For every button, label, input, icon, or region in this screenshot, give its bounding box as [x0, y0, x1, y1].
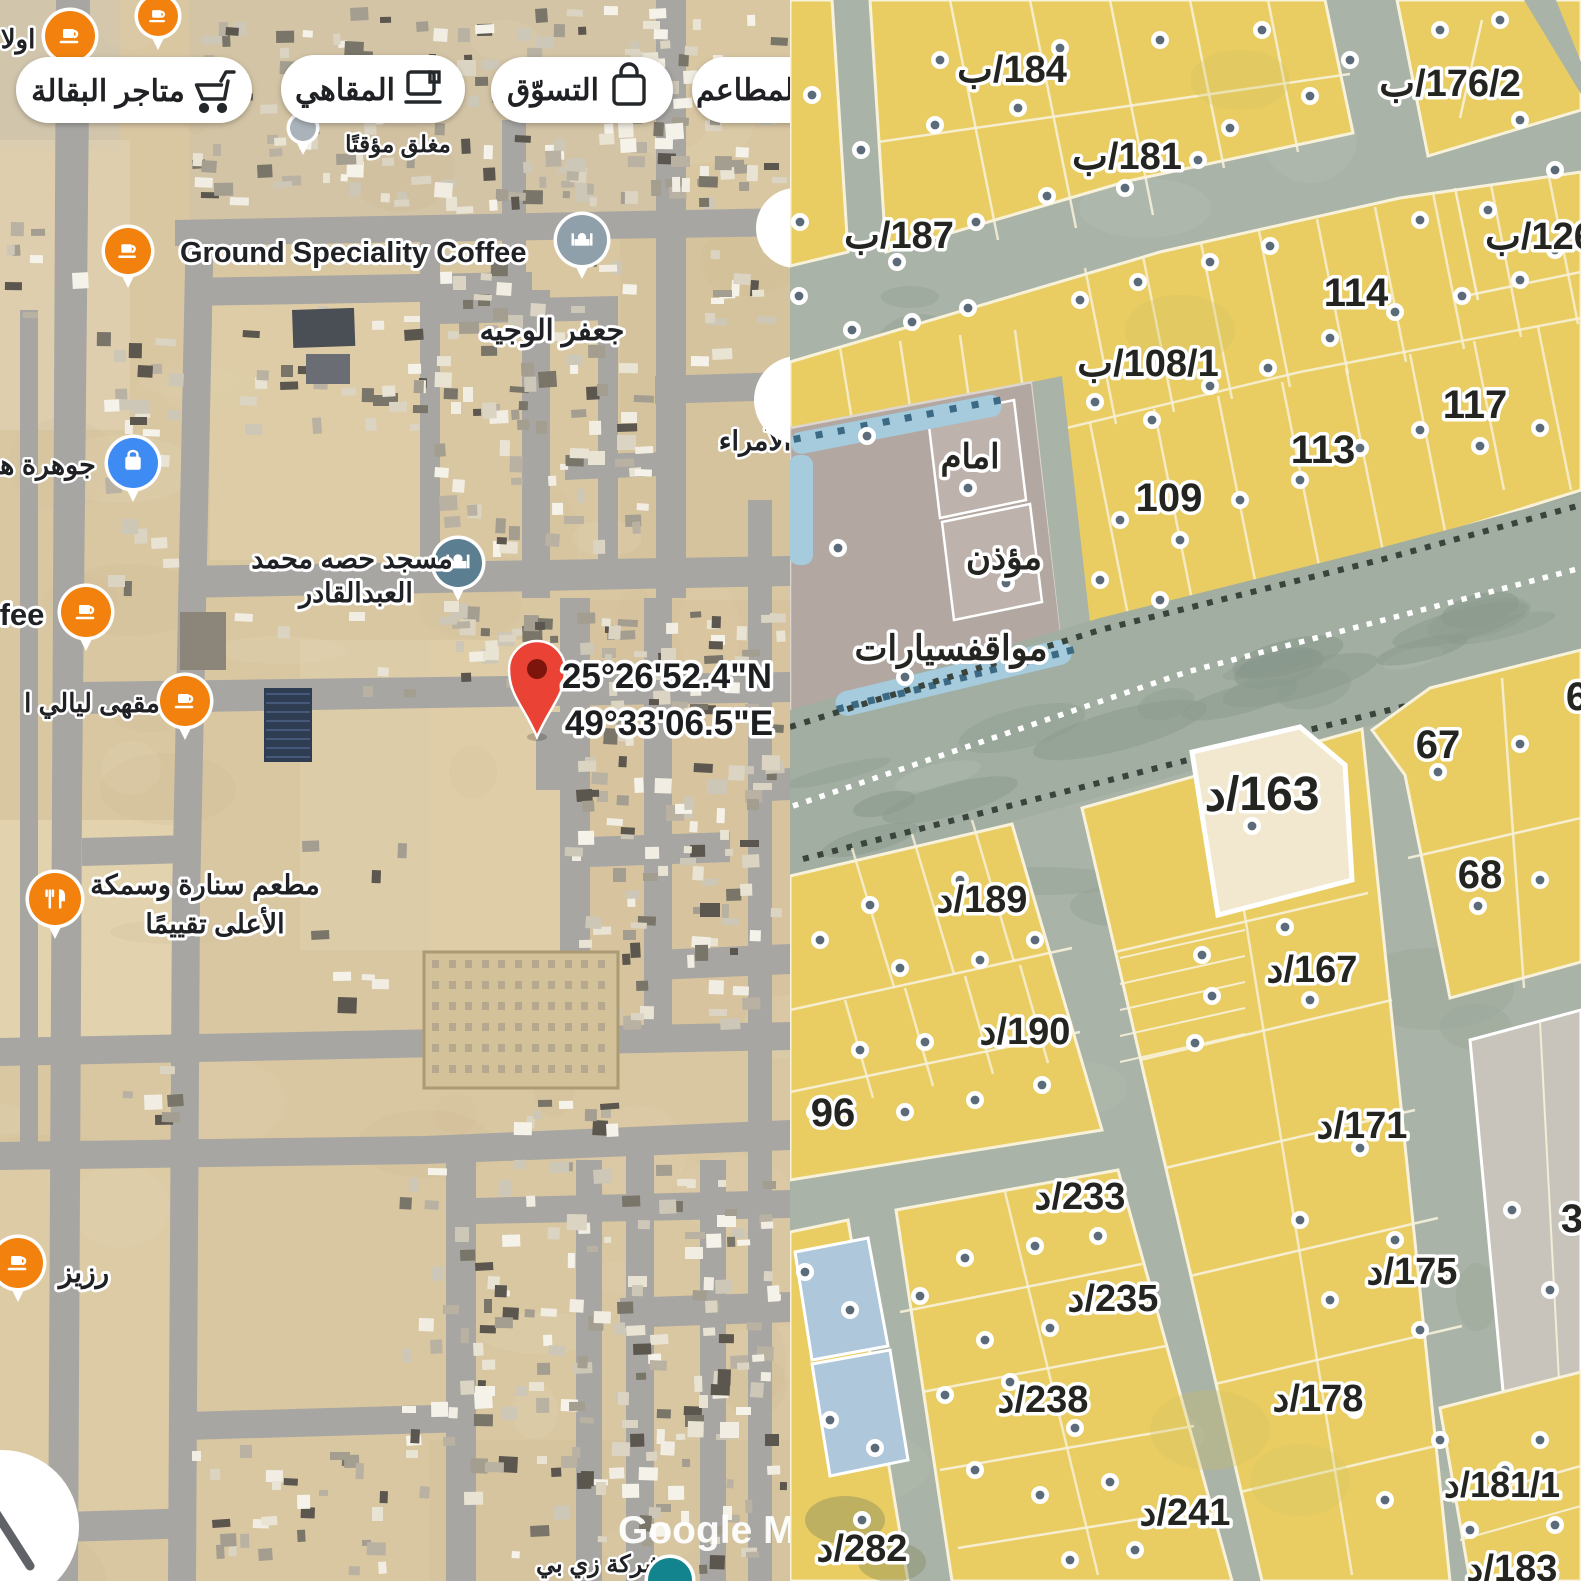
svg-text:رزيز: رزيز: [57, 1257, 109, 1290]
svg-text:د‎/189: د‎/189: [937, 879, 1028, 921]
svg-text:مواقفسيارات: مواقفسيارات: [854, 629, 1047, 670]
svg-text:لمطاعم: لمطاعم: [696, 74, 794, 108]
svg-text:3: 3: [1561, 1197, 1581, 1241]
svg-text:د‎/282: د‎/282: [817, 1528, 908, 1570]
svg-text:د‎/183: د‎/183: [1467, 1548, 1558, 1581]
svg-text:الأعلى تقييمًا: الأعلى تقييمًا: [145, 907, 284, 939]
svg-text:ب‎/126: ب‎/126: [1485, 216, 1581, 258]
svg-text:شركة زي بي: شركة زي بي: [536, 1551, 664, 1579]
svg-text:د‎/190: د‎/190: [980, 1011, 1071, 1053]
svg-text:اولا: اولا: [1, 24, 36, 55]
svg-text:ب‎/187: ب‎/187: [844, 215, 954, 257]
svg-text:Google M: Google M: [618, 1509, 796, 1552]
svg-text:العبدالقادر: العبدالقادر: [297, 578, 413, 610]
svg-text:49°33'06.5"E: 49°33'06.5"E: [565, 704, 773, 743]
svg-text:متاجر البقالة: متاجر البقالة: [31, 75, 185, 109]
svg-text:د‎/238: د‎/238: [998, 1379, 1089, 1421]
svg-text:Ground Speciality Coffee: Ground Speciality Coffee: [180, 237, 526, 269]
svg-text:fee: fee: [0, 597, 44, 632]
svg-text:ب‎/181: ب‎/181: [1072, 136, 1182, 178]
svg-text:جوهرة هـ: جوهرة هـ: [0, 450, 96, 482]
svg-text:امام: امام: [940, 438, 999, 477]
svg-text:د‎/167: د‎/167: [1267, 949, 1358, 991]
svg-text:ب‎/108/1: ب‎/108/1: [1077, 343, 1218, 385]
svg-text:مقهى ليالي ا: مقهى ليالي ا: [24, 688, 160, 719]
svg-text:96: 96: [811, 1091, 856, 1135]
svg-text:د‎/181/1: د‎/181/1: [1444, 1464, 1560, 1505]
svg-text:د‎/233: د‎/233: [1035, 1176, 1126, 1218]
svg-text:المقاهي: المقاهي: [295, 74, 395, 108]
svg-text:25°26'52.4"N: 25°26'52.4"N: [562, 657, 772, 696]
svg-text:د‎/163: د‎/163: [1205, 768, 1320, 821]
svg-text:د‎/241: د‎/241: [1140, 1492, 1231, 1534]
svg-text:د‎/171: د‎/171: [1317, 1105, 1408, 1147]
svg-text:د‎/175: د‎/175: [1367, 1251, 1458, 1293]
svg-text:جعفر الوجيه: جعفر الوجيه: [480, 315, 625, 348]
svg-text:114: 114: [1324, 271, 1389, 315]
svg-text:ب‎/176/2: ب‎/176/2: [1379, 63, 1520, 105]
svg-text:مطعم سنارة وسمكة: مطعم سنارة وسمكة: [90, 870, 319, 902]
svg-text:د‎/235: د‎/235: [1068, 1278, 1159, 1320]
svg-text:113: 113: [1291, 428, 1356, 472]
svg-text:109: 109: [1136, 476, 1203, 520]
svg-text:مؤذن: مؤذن: [966, 539, 1042, 578]
svg-text:التسوّق: التسوّق: [507, 74, 599, 108]
svg-text:67: 67: [1416, 723, 1461, 767]
svg-text:117: 117: [1443, 383, 1508, 427]
svg-text:مغلق مؤقتًا: مغلق مؤقتًا: [345, 131, 451, 159]
svg-text:مسجد حصه محمد: مسجد حصه محمد: [251, 544, 452, 574]
svg-text:68: 68: [1458, 853, 1503, 897]
svg-text:6: 6: [1566, 675, 1581, 719]
svg-text:ب‎/184: ب‎/184: [957, 49, 1067, 91]
svg-text:د‎/178: د‎/178: [1273, 1378, 1364, 1420]
